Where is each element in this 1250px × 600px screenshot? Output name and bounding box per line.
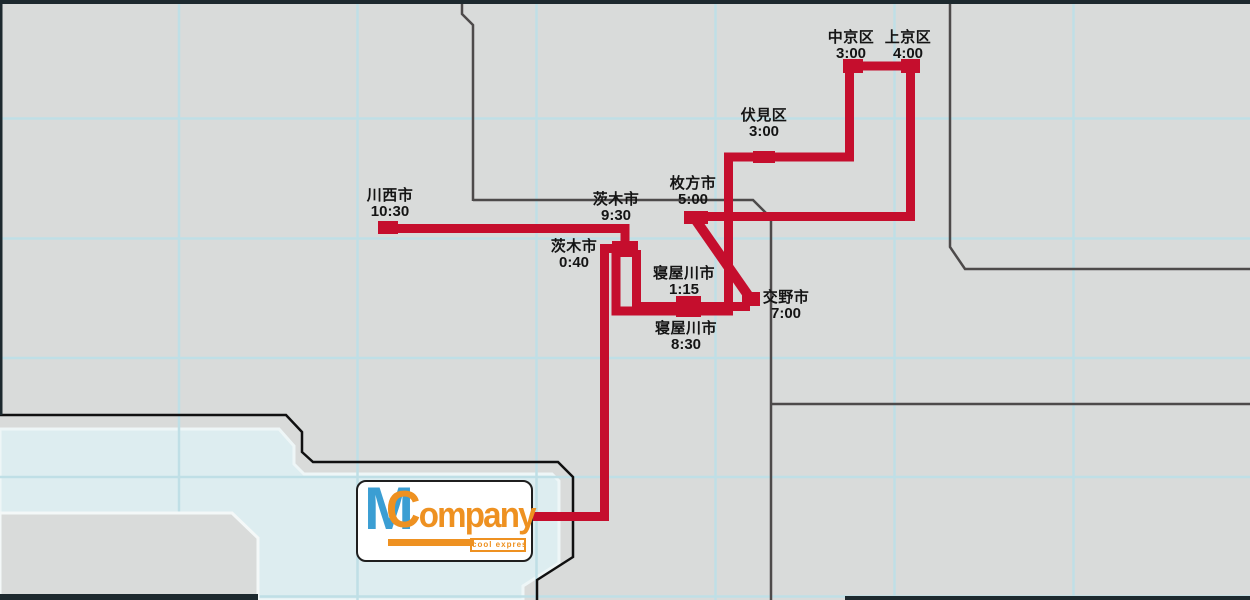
company-logo: M Company cool express bbox=[356, 480, 533, 562]
stop-time: 7:00 bbox=[763, 306, 810, 321]
stop-time: 4:00 bbox=[885, 46, 932, 61]
stop-name: 茨木市 bbox=[593, 192, 640, 207]
stop-name: 枚方市 bbox=[670, 176, 717, 191]
stop-name: 川西市 bbox=[367, 188, 414, 203]
stop-time: 0:40 bbox=[551, 255, 598, 270]
stop-label-neyagawa-first: 寝屋川市 1:15 bbox=[653, 266, 715, 297]
logo-word-capital: C bbox=[386, 481, 419, 539]
logo-word-rest: ompany bbox=[419, 494, 535, 535]
stop-label-ibaraki-first: 茨木市 0:40 bbox=[551, 239, 598, 270]
logo-tagline: cool express bbox=[470, 538, 526, 552]
stop-marker-kawanishi[interactable] bbox=[378, 221, 398, 234]
stop-time: 5:00 bbox=[670, 192, 717, 207]
stop-time: 8:30 bbox=[655, 337, 717, 352]
stop-markers bbox=[378, 59, 920, 317]
logo-word: Company bbox=[386, 481, 535, 539]
stop-time: 10:30 bbox=[367, 204, 414, 219]
stop-time: 3:00 bbox=[828, 46, 875, 61]
stop-marker-ibaraki[interactable] bbox=[612, 241, 638, 257]
stop-marker-neyagawa[interactable] bbox=[676, 296, 701, 317]
stop-marker-fushimi[interactable] bbox=[753, 151, 775, 163]
stop-label-hirakata: 枚方市 5:00 bbox=[670, 176, 717, 207]
island-area bbox=[0, 513, 258, 600]
stop-name: 交野市 bbox=[763, 290, 810, 305]
logo-underline-bar bbox=[388, 539, 474, 546]
stop-name: 伏見区 bbox=[741, 108, 788, 123]
map-canvas bbox=[0, 0, 1250, 600]
stop-time: 9:30 bbox=[593, 208, 640, 223]
stop-label-nakagyo: 中京区 3:00 bbox=[828, 30, 875, 61]
delivery-route bbox=[388, 66, 911, 517]
route-map: 茨木市 0:40 寝屋川市 1:15 伏見区 3:00 中京区 3:00 上京区… bbox=[0, 0, 1250, 600]
region-borders bbox=[462, 4, 1250, 600]
stop-name: 寝屋川市 bbox=[653, 266, 715, 281]
stop-name: 寝屋川市 bbox=[655, 321, 717, 336]
stop-time: 1:15 bbox=[653, 282, 715, 297]
stop-marker-hirakata[interactable] bbox=[684, 211, 708, 224]
stop-time: 3:00 bbox=[741, 124, 788, 139]
stop-name: 上京区 bbox=[885, 30, 932, 45]
stop-label-katano: 交野市 7:00 bbox=[763, 290, 810, 321]
stop-name: 茨木市 bbox=[551, 239, 598, 254]
stop-label-ibaraki-second: 茨木市 9:30 bbox=[593, 192, 640, 223]
stop-marker-katano[interactable] bbox=[742, 292, 760, 306]
stop-label-kawanishi: 川西市 10:30 bbox=[367, 188, 414, 219]
stop-name: 中京区 bbox=[828, 30, 875, 45]
stop-label-kamigyo: 上京区 4:00 bbox=[885, 30, 932, 61]
stop-label-fushimi: 伏見区 3:00 bbox=[741, 108, 788, 139]
stop-label-neyagawa-second: 寝屋川市 8:30 bbox=[655, 321, 717, 352]
